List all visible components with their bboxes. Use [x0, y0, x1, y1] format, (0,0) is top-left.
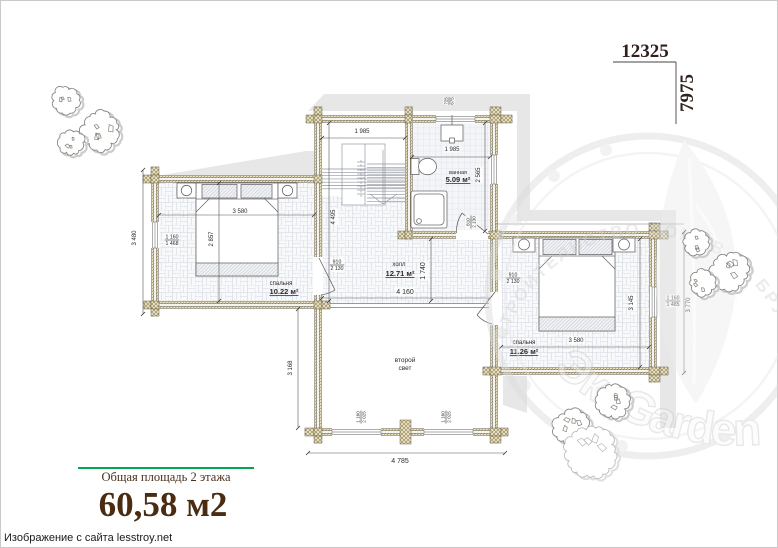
svg-text:5.09 м²: 5.09 м²: [446, 175, 471, 184]
svg-text:1 740: 1 740: [420, 262, 427, 280]
svg-text:1 468: 1 468: [166, 241, 179, 247]
svg-text:60,58 м2: 60,58 м2: [99, 485, 228, 524]
svg-text:12.71 м²: 12.71 м²: [386, 269, 415, 278]
svg-text:2 565: 2 565: [476, 167, 482, 183]
svg-text:спальня: спальня: [513, 340, 536, 346]
svg-text:4 160: 4 160: [396, 289, 414, 296]
svg-text:1 160: 1 160: [441, 411, 446, 423]
svg-text:1 160: 1 160: [356, 411, 361, 423]
svg-text:10.22 м²: 10.22 м²: [270, 287, 299, 296]
svg-text:810: 810: [466, 218, 471, 226]
svg-text:675: 675: [449, 97, 454, 105]
svg-text:2 130: 2 130: [331, 266, 344, 272]
svg-text:4 785: 4 785: [391, 458, 409, 465]
svg-text:2 857: 2 857: [209, 231, 215, 247]
svg-text:1 985: 1 985: [354, 129, 370, 135]
svg-text:12325: 12325: [621, 41, 669, 62]
svg-text:Изображение с сайта lesstroy.n: Изображение с сайта lesstroy.net: [4, 532, 172, 544]
svg-text:3 480: 3 480: [132, 230, 138, 246]
svg-text:второй: второй: [395, 356, 416, 364]
svg-text:свет: свет: [398, 365, 411, 372]
svg-text:1 985: 1 985: [444, 147, 460, 153]
svg-text:2 025: 2 025: [362, 411, 367, 423]
svg-text:Общая площадь 2 этажа: Общая площадь 2 этажа: [101, 470, 231, 484]
svg-text:1 160: 1 160: [166, 235, 179, 241]
svg-text:2 025: 2 025: [447, 411, 452, 423]
svg-text:910: 910: [333, 260, 342, 266]
svg-text:4 495: 4 495: [331, 209, 337, 225]
svg-text:910: 910: [509, 273, 518, 279]
svg-text:3 168: 3 168: [288, 360, 294, 376]
svg-text:725: 725: [444, 97, 449, 105]
svg-text:2 130: 2 130: [472, 216, 477, 228]
svg-text:холл: холл: [392, 262, 406, 268]
svg-text:3 145: 3 145: [629, 295, 635, 311]
svg-text:7975: 7975: [677, 74, 698, 112]
svg-text:3 580: 3 580: [232, 209, 248, 215]
